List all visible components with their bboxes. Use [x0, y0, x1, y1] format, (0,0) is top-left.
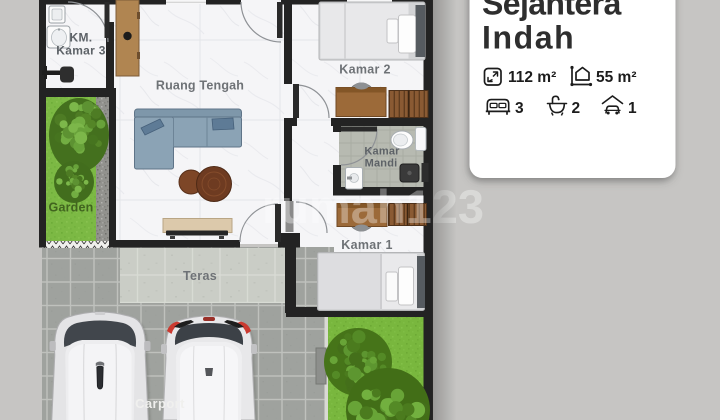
svg-text:Teras: Teras: [183, 269, 217, 283]
svg-text:KM.: KM.: [70, 31, 93, 45]
svg-text:Garden: Garden: [49, 201, 94, 215]
svg-text:Indah: Indah: [482, 20, 575, 56]
svg-text:112 m²: 112 m²: [508, 69, 556, 86]
svg-text:3: 3: [515, 100, 524, 117]
svg-text:Carport: Carport: [135, 396, 185, 411]
svg-text:2: 2: [572, 100, 581, 117]
svg-text:Kamar 2: Kamar 2: [339, 63, 390, 77]
svg-text:Kamar 3: Kamar 3: [56, 44, 105, 58]
svg-text:Kamar: Kamar: [364, 146, 400, 158]
svg-text:Kamar 1: Kamar 1: [341, 238, 392, 252]
svg-text:Sejahtera: Sejahtera: [482, 0, 621, 22]
svg-text:Ruang Tengah: Ruang Tengah: [156, 79, 244, 93]
svg-text:1: 1: [628, 100, 637, 117]
svg-text:55 m²: 55 m²: [596, 69, 637, 86]
svg-text:Mandi: Mandi: [365, 158, 398, 170]
